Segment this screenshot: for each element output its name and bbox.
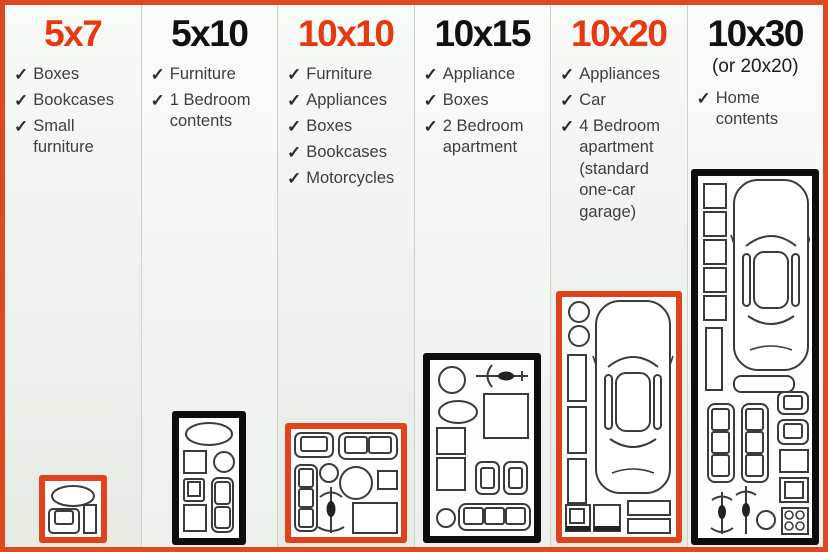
list-item: ✓ Small furniture: [14, 116, 137, 159]
car-icon: [593, 301, 673, 493]
box-icon: [704, 212, 726, 236]
list-item: ✓ Furniture: [151, 64, 274, 86]
unit-diagram-10x30: [691, 169, 819, 545]
box-icon: [353, 503, 397, 533]
column-10x20: 10x20 ✓ Appliances ✓ Car ✓ 4 Bedroom apa…: [551, 5, 688, 547]
list-item: ✓ Furniture: [287, 64, 410, 86]
list-item-label: Boxes: [306, 116, 352, 137]
box-icon: [484, 394, 528, 438]
box-icon: [378, 471, 397, 489]
loveseat-icon: [778, 420, 808, 444]
round-table-icon: [340, 467, 372, 499]
unit-diagram-5x10: [172, 411, 246, 545]
sofa-icon: [459, 504, 530, 530]
stool-icon: [569, 326, 589, 346]
loveseat-icon: [295, 433, 333, 457]
unit-feature-list: ✓ Appliance ✓ Boxes ✓ 2 Bedroom apartmen…: [424, 64, 547, 159]
check-icon: ✓: [14, 64, 28, 86]
bookcase-icon: [706, 328, 722, 390]
list-item-label: 2 Bedroom apartment: [443, 116, 546, 159]
chair-icon: [594, 505, 620, 531]
sofa-icon: [295, 465, 317, 531]
floorplan-10x15: [432, 362, 532, 534]
box-icon: [704, 296, 726, 320]
oval-table-icon: [439, 401, 477, 423]
list-item-label: Appliances: [579, 64, 660, 85]
box-icon: [184, 505, 206, 531]
box-icon: [568, 459, 586, 503]
floorplan-10x20: [564, 299, 674, 535]
check-icon: ✓: [287, 64, 301, 86]
box-icon: [184, 451, 206, 473]
check-icon: ✓: [560, 64, 574, 86]
list-item: ✓ Home contents: [697, 88, 820, 131]
floorplan-5x7: [47, 483, 99, 535]
column-10x10: 10x10 ✓ Furniture ✓ Appliances ✓ Boxes ✓…: [278, 5, 415, 547]
bicycle-icon: [711, 492, 733, 534]
unit-size-title: 5x7: [5, 15, 141, 54]
stool-icon: [437, 509, 455, 527]
sofa-icon: [339, 433, 397, 459]
check-icon: ✓: [424, 116, 438, 138]
column-5x7: 5x7 ✓ Boxes ✓ Bookcases ✓ Small furnitur…: [5, 5, 142, 547]
floorplan-5x10: [181, 420, 237, 536]
list-item-label: Small furniture: [33, 116, 136, 159]
list-item-label: Bookcases: [33, 90, 114, 111]
unit-size-title: 10x15: [415, 15, 551, 54]
sofa-icon: [708, 404, 734, 482]
stool-icon: [320, 464, 338, 482]
stool-icon: [757, 511, 775, 529]
unit-size-subtitle: (or 20x20): [688, 56, 824, 78]
list-item: ✓ 1 Bedroom contents: [151, 90, 274, 133]
list-item-label: Motorcycles: [306, 168, 394, 189]
list-item-label: 1 Bedroom contents: [170, 90, 273, 133]
armchair-icon: [49, 509, 79, 533]
chair-icon: [780, 478, 808, 502]
list-item-label: Boxes: [33, 64, 79, 85]
round-table-icon: [214, 452, 234, 472]
armchair-icon: [504, 462, 527, 494]
list-item-label: Furniture: [170, 64, 236, 85]
check-icon: ✓: [424, 64, 438, 86]
unit-diagram-10x15: [423, 353, 541, 543]
list-item: ✓ Appliance: [424, 64, 547, 86]
box-icon: [568, 407, 586, 453]
list-item: ✓ Bookcases: [287, 142, 410, 164]
unit-diagram-5x7: [39, 475, 107, 543]
check-icon: ✓: [560, 90, 574, 112]
list-item: ✓ 4 Bedroom apartment (standard one-car …: [560, 116, 683, 223]
column-10x15: 10x15 ✓ Appliance ✓ Boxes ✓ 2 Bedroom ap…: [415, 5, 552, 547]
round-table-icon: [439, 367, 465, 393]
list-item: ✓ Boxes: [424, 90, 547, 112]
stool-icon: [569, 302, 589, 322]
unit-diagram-10x20: [556, 291, 682, 543]
unit-size-title: 10x10: [278, 15, 414, 54]
box-icon: [704, 268, 726, 292]
check-icon: ✓: [287, 168, 301, 190]
list-item-label: Car: [579, 90, 606, 111]
check-icon: ✓: [560, 116, 574, 138]
check-icon: ✓: [14, 90, 28, 112]
list-item: ✓ Appliances: [560, 64, 683, 86]
armchair-icon: [476, 462, 499, 494]
check-icon: ✓: [151, 90, 165, 112]
floorplan-10x10: [293, 431, 399, 535]
list-item: ✓ Boxes: [14, 64, 137, 86]
list-item-label: Boxes: [443, 90, 489, 111]
oval-table-icon: [52, 486, 94, 506]
list-item: ✓ 2 Bedroom apartment: [424, 116, 547, 159]
check-icon: ✓: [287, 116, 301, 138]
stove-icon: [782, 508, 808, 534]
floorplan-10x30: [700, 178, 810, 536]
unit-size-title: 5x10: [142, 15, 278, 54]
sofa-icon: [212, 478, 233, 532]
column-10x30: 10x30 (or 20x20) ✓ Home contents: [688, 5, 824, 547]
unit-size-title: 10x30: [688, 15, 824, 54]
unit-feature-list: ✓ Appliances ✓ Car ✓ 4 Bedroom apartment…: [560, 64, 683, 223]
motorcycle-icon: [476, 365, 528, 387]
check-icon: ✓: [697, 88, 711, 110]
car-icon: [731, 180, 810, 370]
motorcycle-icon: [318, 487, 344, 533]
list-item-label: 4 Bedroom apartment (standard one-car ga…: [579, 116, 682, 223]
chair-icon: [566, 505, 590, 531]
box-icon: [437, 458, 465, 490]
box-icon: [568, 355, 586, 401]
list-item: ✓ Appliances: [287, 90, 410, 112]
box-icon: [704, 240, 726, 264]
list-item-label: Bookcases: [306, 142, 387, 163]
bicycle-icon: [736, 486, 756, 534]
list-item: ✓ Motorcycles: [287, 168, 410, 190]
column-5x10: 5x10 ✓ Furniture ✓ 1 Bedroom contents: [142, 5, 279, 547]
list-item: ✓ Car: [560, 90, 683, 112]
dresser-icon: [734, 376, 794, 392]
sofa-icon: [742, 404, 768, 482]
check-icon: ✓: [287, 90, 301, 112]
box-icon: [84, 505, 96, 533]
list-item: ✓ Bookcases: [14, 90, 137, 112]
unit-feature-list: ✓ Furniture ✓ Appliances ✓ Boxes ✓ Bookc…: [287, 64, 410, 190]
unit-feature-list: ✓ Home contents: [697, 88, 820, 131]
unit-size-title: 10x20: [551, 15, 687, 54]
check-icon: ✓: [424, 90, 438, 112]
list-item: ✓ Boxes: [287, 116, 410, 138]
check-icon: ✓: [287, 142, 301, 164]
check-icon: ✓: [14, 116, 28, 138]
chair-icon: [184, 479, 204, 501]
box-icon: [704, 184, 726, 208]
box-icon: [437, 428, 465, 454]
box-icon: [780, 450, 808, 472]
box-icon: [628, 501, 670, 515]
list-item-label: Appliances: [306, 90, 387, 111]
oval-table-icon: [186, 423, 232, 445]
list-item-label: Appliance: [443, 64, 515, 85]
unit-feature-list: ✓ Boxes ✓ Bookcases ✓ Small furniture: [14, 64, 137, 159]
box-icon: [628, 519, 670, 533]
check-icon: ✓: [151, 64, 165, 86]
unit-diagram-10x10: [285, 423, 407, 543]
unit-feature-list: ✓ Furniture ✓ 1 Bedroom contents: [151, 64, 274, 133]
loveseat-icon: [778, 392, 808, 414]
list-item-label: Furniture: [306, 64, 372, 85]
list-item-label: Home contents: [716, 88, 819, 131]
storage-size-chart: 5x7 ✓ Boxes ✓ Bookcases ✓ Small furnitur…: [5, 5, 823, 547]
